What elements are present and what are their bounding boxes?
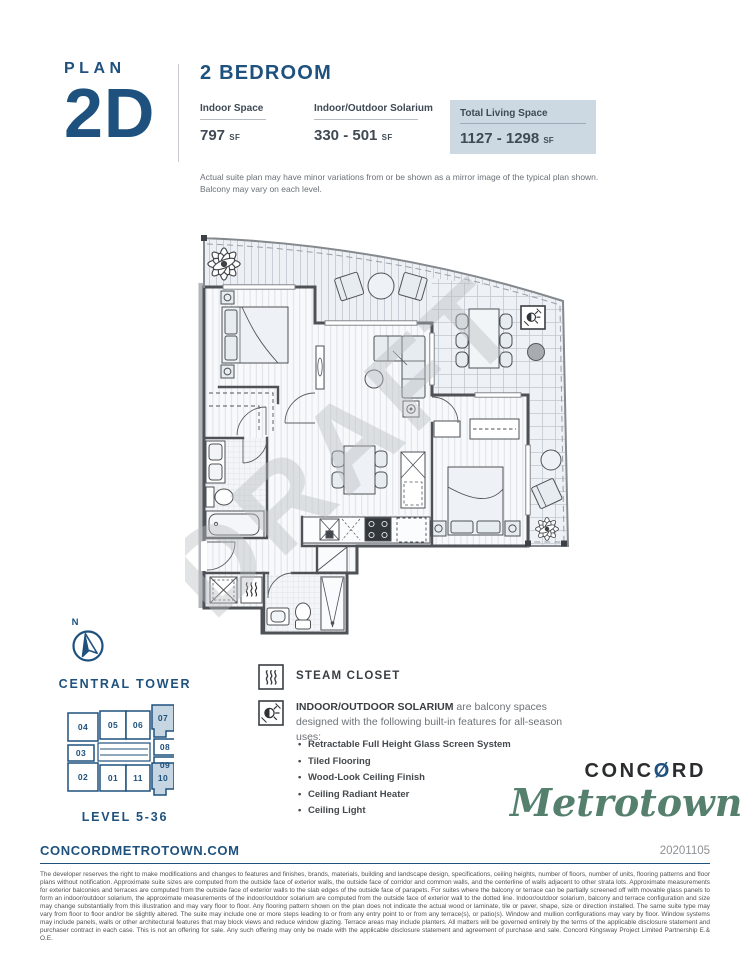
column-marker [201, 235, 207, 241]
stat-rule [200, 119, 266, 120]
stat-unit: SF [229, 133, 240, 142]
stat-label: Indoor Space [200, 103, 266, 114]
steam-closet-icon [258, 664, 284, 690]
stat-rule [314, 119, 418, 120]
feature-item: Retractable Full Height Glass Screen Sys… [298, 737, 511, 754]
stat-rule [460, 123, 586, 124]
feature-item: Ceiling Radiant Heater [298, 787, 511, 804]
disclaimer-line-2: Balcony may vary on each level. [200, 184, 322, 194]
svg-text:04: 04 [78, 722, 88, 732]
svg-text:02: 02 [78, 772, 88, 782]
elevator-core [98, 743, 150, 761]
stat-unit: SF [382, 133, 393, 142]
svg-text:01: 01 [108, 773, 118, 783]
floor-plan: DRAFT [185, 225, 605, 645]
stat-solarium: Indoor/Outdoor Solarium 330 - 501 SF [314, 103, 433, 144]
level-range: LEVEL 5-36 [52, 810, 198, 824]
header-divider [178, 64, 179, 162]
solarium-plan-icon [521, 306, 545, 329]
svg-text:03: 03 [76, 748, 86, 758]
feature-item: Tiled Flooring [298, 754, 511, 771]
keyplate: 04 05 06 07 03 08 09 02 01 11 10 [62, 701, 174, 806]
stat-total-living-space: Total Living Space 1127 - 1298 SF [450, 100, 596, 154]
north-arrow-icon [78, 632, 97, 656]
plan-disclaimer: Actual suite plan may have minor variati… [200, 171, 630, 195]
stat-unit: SF [543, 136, 553, 145]
stat-value: 330 - 501 [314, 127, 377, 144]
svg-text:06: 06 [133, 720, 143, 730]
svg-text:10: 10 [158, 773, 168, 783]
floor-plan-drawing: DRAFT [185, 225, 605, 645]
date-code: 20201105 [660, 845, 710, 857]
website-url: CONCORDMETROTOWN.COM [40, 843, 240, 858]
compass: N [58, 610, 118, 675]
suite-type-title: 2 BEDROOM [200, 62, 332, 85]
stat-value: 797 [200, 127, 225, 144]
stat-label: Indoor/Outdoor Solarium [314, 103, 433, 114]
stove-icon [365, 518, 391, 541]
stat-label: Total Living Space [460, 108, 586, 119]
svg-text:05: 05 [108, 720, 118, 730]
north-label: N [72, 617, 79, 628]
svg-text:08: 08 [160, 742, 170, 752]
solarium-features-list: Retractable Full Height Glass Screen Sys… [298, 737, 511, 820]
metrotown-script: Metrotown [510, 781, 712, 825]
plant-icon [536, 518, 559, 541]
column-marker [561, 541, 567, 547]
concord-o-glyph: Ø [654, 760, 672, 782]
steam-closet-label: STEAM CLOSET [296, 670, 401, 682]
svg-text:11: 11 [133, 773, 143, 783]
plan-identifier: PLAN 2D [64, 60, 155, 148]
stat-indoor-space: Indoor Space 797 SF [200, 103, 266, 144]
svg-text:07: 07 [158, 713, 168, 723]
plan-code: 2D [64, 79, 155, 148]
plant-icon [208, 248, 240, 280]
solarium-title: INDOOR/OUTDOOR SOLARIUM [296, 701, 454, 713]
stat-value: 1127 - 1298 [460, 130, 539, 147]
column-marker [525, 541, 531, 547]
disclaimer-line-1: Actual suite plan may have minor variati… [200, 172, 598, 182]
feature-item: Ceiling Light [298, 803, 511, 820]
footer-rule [40, 863, 710, 864]
legal-disclaimer: The developer reserves the right to make… [40, 871, 710, 943]
feature-item: Wood-Look Ceiling Finish [298, 770, 511, 787]
brand-logo: CONCØRD Metrotown [510, 760, 712, 825]
tower-name: CENTRAL TOWER [52, 677, 198, 691]
svg-text:09: 09 [160, 760, 170, 770]
solarium-icon [258, 700, 284, 726]
brochure-page: PLAN 2D 2 BEDROOM Indoor Space 797 SF In… [0, 0, 750, 963]
